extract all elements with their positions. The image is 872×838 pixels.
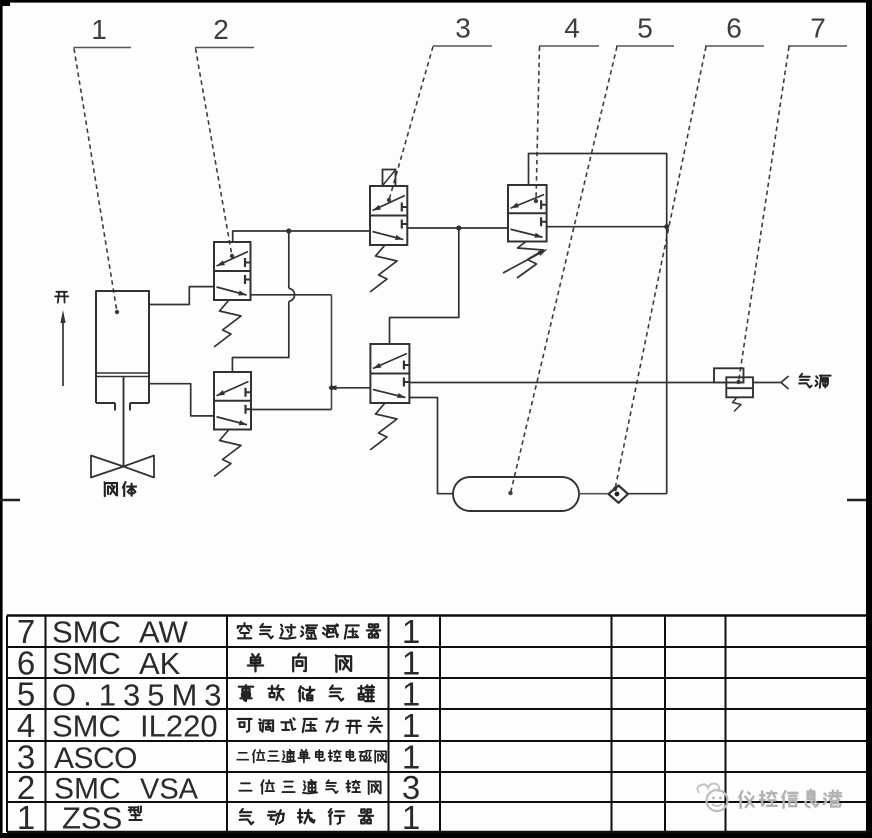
svg-text:1: 1	[17, 799, 35, 836]
svg-text:VSA: VSA	[140, 774, 199, 806]
svg-text:IL220: IL220	[140, 709, 218, 744]
svg-text:AW: AW	[139, 615, 189, 650]
svg-text:7: 7	[810, 13, 826, 44]
svg-text:SMC: SMC	[52, 709, 121, 744]
svg-text:3: 3	[455, 13, 471, 44]
svg-text:2: 2	[213, 14, 229, 45]
svg-text:1: 1	[402, 799, 420, 836]
svg-text:SMC: SMC	[52, 615, 121, 650]
svg-text:ASCO: ASCO	[54, 742, 137, 775]
svg-text:4: 4	[564, 13, 580, 44]
svg-text:1: 1	[91, 14, 107, 45]
svg-text:O.135M3: O.135M3	[52, 678, 229, 713]
svg-text:6: 6	[726, 13, 742, 44]
svg-text:5: 5	[637, 13, 653, 44]
svg-text:AK: AK	[139, 646, 181, 681]
svg-text:SMC: SMC	[52, 646, 121, 681]
svg-text:ZSS: ZSS	[62, 801, 122, 836]
